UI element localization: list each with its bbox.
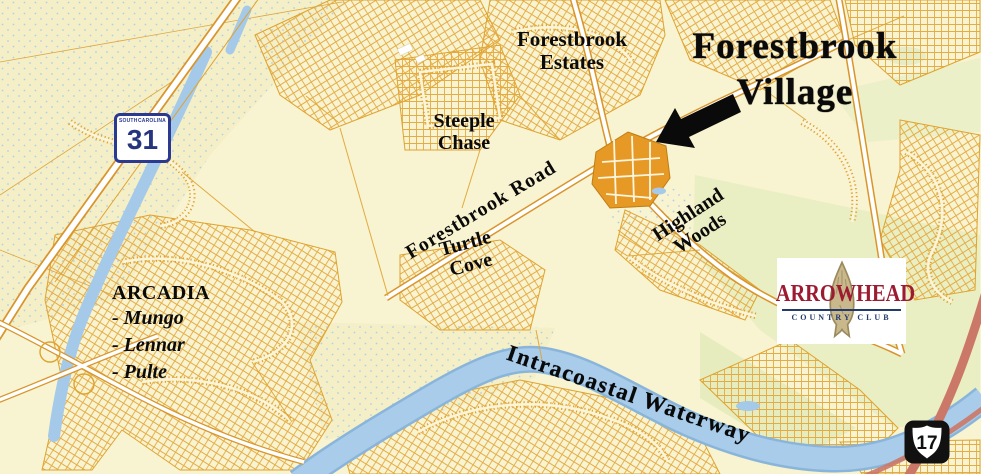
logo-club-subtitle: COUNTRY CLUB xyxy=(782,309,901,322)
label-steeple-chase: Steeple Chase xyxy=(433,110,494,154)
label-forestbrook-estates: Forestbrook Estates xyxy=(517,28,627,74)
title-forestbrook-village: Forestbrook Village xyxy=(693,24,898,117)
label-arcadia: ARCADIA - Mungo - Lennar - Pulte xyxy=(112,282,210,386)
map-canvas: Forestbrook Village Forestbrook Estates … xyxy=(0,0,981,474)
us17-route-number: 17 xyxy=(916,433,937,454)
title-line-1: Forestbrook xyxy=(693,24,898,70)
arcadia-title: ARCADIA xyxy=(112,282,210,305)
arcadia-builder-lennar: - Lennar xyxy=(112,332,210,359)
us-17-route-shield: 17 xyxy=(903,419,951,465)
sc31-route-number: 31 xyxy=(117,126,168,154)
logo-club-name: ARROWHEAD xyxy=(776,281,908,309)
arcadia-builder-pulte: - Pulte xyxy=(112,359,210,386)
sc-31-route-shield: SOUTH CAROLINA 31 xyxy=(114,113,171,163)
arrowhead-country-club-logo: ARROWHEAD COUNTRY CLUB xyxy=(777,258,906,344)
arcadia-builder-mungo: - Mungo xyxy=(112,305,210,332)
title-line-2: Village xyxy=(693,70,898,116)
